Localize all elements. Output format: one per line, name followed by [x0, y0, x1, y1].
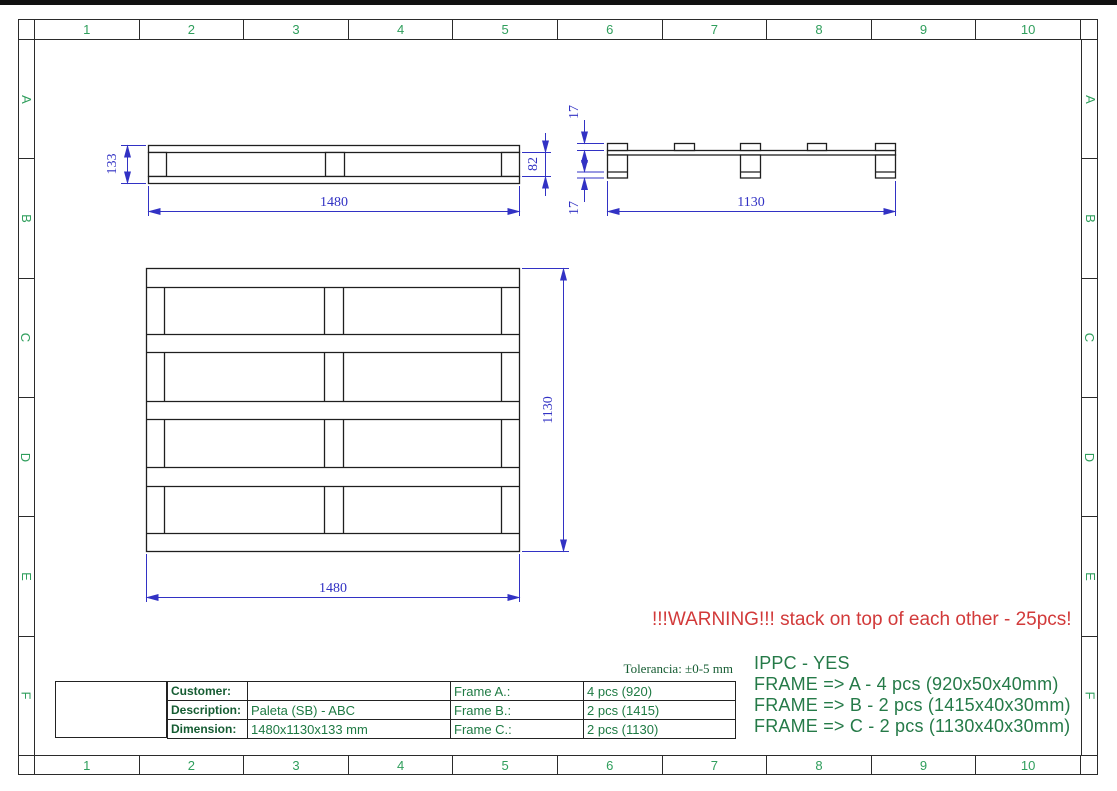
- dim-side-length: 1480: [320, 195, 348, 210]
- dimension-value: 1480x1130x133 mm: [248, 720, 451, 739]
- end-right-block: [876, 155, 896, 178]
- customer-value: [248, 682, 451, 701]
- end-deck-board: [608, 151, 896, 156]
- side-top-deck-board: [149, 146, 520, 153]
- frame-c-label: Frame C.:: [451, 720, 584, 739]
- frame-a-note: FRAME => A - 4 pcs (920x50x40mm): [754, 674, 1071, 695]
- dim-side-height: 133: [105, 154, 120, 175]
- frame-notes: IPPC - YES FRAME => A - 4 pcs (920x50x40…: [754, 653, 1071, 737]
- end-left-block: [608, 155, 628, 178]
- end-view: [608, 144, 896, 179]
- dim-end-bottom-board: 17: [567, 201, 582, 215]
- dim-plan-width: 1130: [541, 396, 556, 423]
- end-top-tab: [608, 144, 628, 151]
- plan-view: [147, 269, 520, 552]
- dim-end-top-board: 17: [567, 105, 582, 119]
- drawing-sheet: 1 2 3 4 5 6 7 8 9 10 1 2 3 4 5 6 7 8 9 1…: [0, 0, 1117, 791]
- frame-a-value: 4 pcs (920): [584, 682, 736, 701]
- customer-label: Customer:: [168, 682, 248, 701]
- side-center-block: [326, 153, 345, 177]
- dim-side-deck-gap: 82: [526, 157, 541, 171]
- title-block-logo-box: [55, 681, 167, 738]
- side-right-block: [502, 153, 520, 177]
- frame-a-label: Frame A.:: [451, 682, 584, 701]
- frame-b-note: FRAME => B - 2 pcs (1415x40x30mm): [754, 695, 1071, 716]
- dim-plan-length: 1480: [319, 581, 347, 596]
- stacking-warning-text: !!!WARNING!!! stack on top of each other…: [652, 609, 1072, 631]
- end-top-tab: [808, 144, 827, 151]
- side-view: [149, 146, 520, 184]
- plan-outline: [147, 269, 520, 552]
- ippc-note: IPPC - YES: [754, 653, 1071, 674]
- end-top-tab: [741, 144, 761, 151]
- dim-end-length: 1130: [737, 195, 764, 210]
- description-value: Paleta (SB) - ABC: [248, 701, 451, 720]
- frame-b-value: 2 pcs (1415): [584, 701, 736, 720]
- title-block-table: Customer: Frame A.: 4 pcs (920) Descript…: [167, 681, 736, 739]
- frame-b-label: Frame B.:: [451, 701, 584, 720]
- end-center-block: [741, 155, 761, 178]
- tolerance-note: Tolerancia: ±0-5 mm: [560, 661, 733, 677]
- dimension-label: Dimension:: [168, 720, 248, 739]
- end-top-tab: [675, 144, 695, 151]
- side-left-block: [149, 153, 167, 177]
- frame-c-value: 2 pcs (1130): [584, 720, 736, 739]
- end-top-tab: [876, 144, 896, 151]
- description-label: Description:: [168, 701, 248, 720]
- side-bottom-board: [149, 177, 520, 184]
- frame-c-note: FRAME => C - 2 pcs (1130x40x30mm): [754, 716, 1071, 737]
- end-view-dim-labels: 17 17 1130: [567, 105, 765, 215]
